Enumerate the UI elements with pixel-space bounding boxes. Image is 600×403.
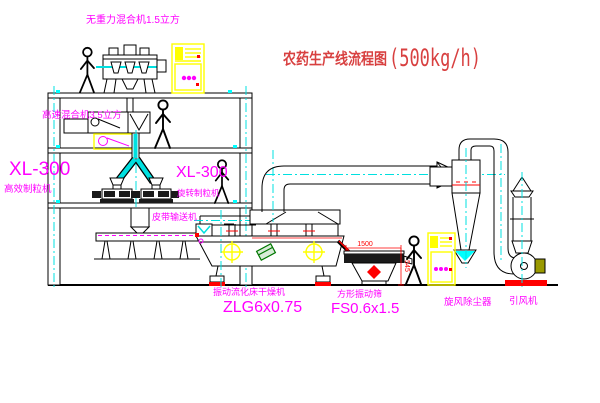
flow-diagram-canvas: 1500 545 农药生产线流程图 (500kg/h) 无重力混合机1.5立方 … bbox=[0, 0, 600, 403]
control-cabinet-2 bbox=[428, 233, 455, 285]
label-granulator-left-model: XL-300 bbox=[9, 159, 70, 180]
diagram-title: 农药生产线流程图 (500kg/h) bbox=[282, 44, 481, 72]
label-granulator-right-model: XL-300 bbox=[176, 164, 228, 181]
panel-knob bbox=[192, 76, 196, 80]
granulator-discharge-duct bbox=[131, 208, 149, 233]
label-fan: 引风机 bbox=[509, 295, 538, 307]
panel-knob bbox=[439, 267, 443, 271]
label-gravity-mixer: 无重力混合机1.5立方 bbox=[86, 13, 180, 26]
title-capacity: (500kg/h) bbox=[389, 44, 481, 72]
label-high-speed-mixer: 高速混合机3.5立方 bbox=[42, 109, 122, 121]
indicator-lamp bbox=[449, 237, 452, 240]
label-cyclone: 旋风除尘器 bbox=[444, 296, 492, 308]
induced-draft-fan bbox=[505, 253, 547, 286]
panel-knob bbox=[434, 267, 438, 271]
label-dryer-name: 振动流化床干燥机 bbox=[213, 286, 285, 297]
label-granulator-right-name: 旋转制粒机 bbox=[177, 188, 220, 198]
sieve-height-dim: 545 bbox=[403, 260, 410, 272]
production-line-diagram: 1500 545 农药生产线流程图 (500kg/h) 无重力混合机1.5立方 … bbox=[0, 0, 600, 403]
granulator-left bbox=[92, 178, 140, 203]
indicator-lamp bbox=[449, 268, 452, 271]
label-granulator-left-name: 高效制粒机 bbox=[4, 183, 52, 195]
square-vibrating-sieve: 1500 545 bbox=[338, 241, 412, 285]
belt-conveyor bbox=[94, 233, 200, 259]
belt-guard-highlight bbox=[94, 134, 134, 149]
label-belt-conveyor: 皮带输送机 bbox=[152, 211, 197, 222]
title-text: 农药生产线流程图 bbox=[282, 49, 387, 68]
sieve-length-dim: 1500 bbox=[357, 241, 373, 248]
control-cabinet-1 bbox=[172, 44, 204, 93]
label-sieve-model: FS0.6x1.5 bbox=[331, 300, 399, 317]
indicator-lamp bbox=[196, 83, 199, 86]
worker-level2 bbox=[155, 100, 170, 148]
panel-knob bbox=[444, 267, 448, 271]
granulator-right bbox=[131, 178, 179, 203]
panel-knob bbox=[187, 76, 191, 80]
fan-base bbox=[505, 280, 547, 286]
spring-foot bbox=[209, 282, 225, 286]
fan-motor bbox=[535, 259, 545, 273]
indicator-lamp bbox=[197, 55, 200, 58]
gravity-free-mixer bbox=[96, 45, 166, 93]
panel-knob bbox=[182, 76, 186, 80]
spring-foot bbox=[315, 282, 331, 286]
label-sieve-name: 方形振动筛 bbox=[337, 288, 382, 299]
worker-roof bbox=[80, 48, 94, 93]
label-dryer-model: ZLG6x0.75 bbox=[223, 299, 302, 316]
